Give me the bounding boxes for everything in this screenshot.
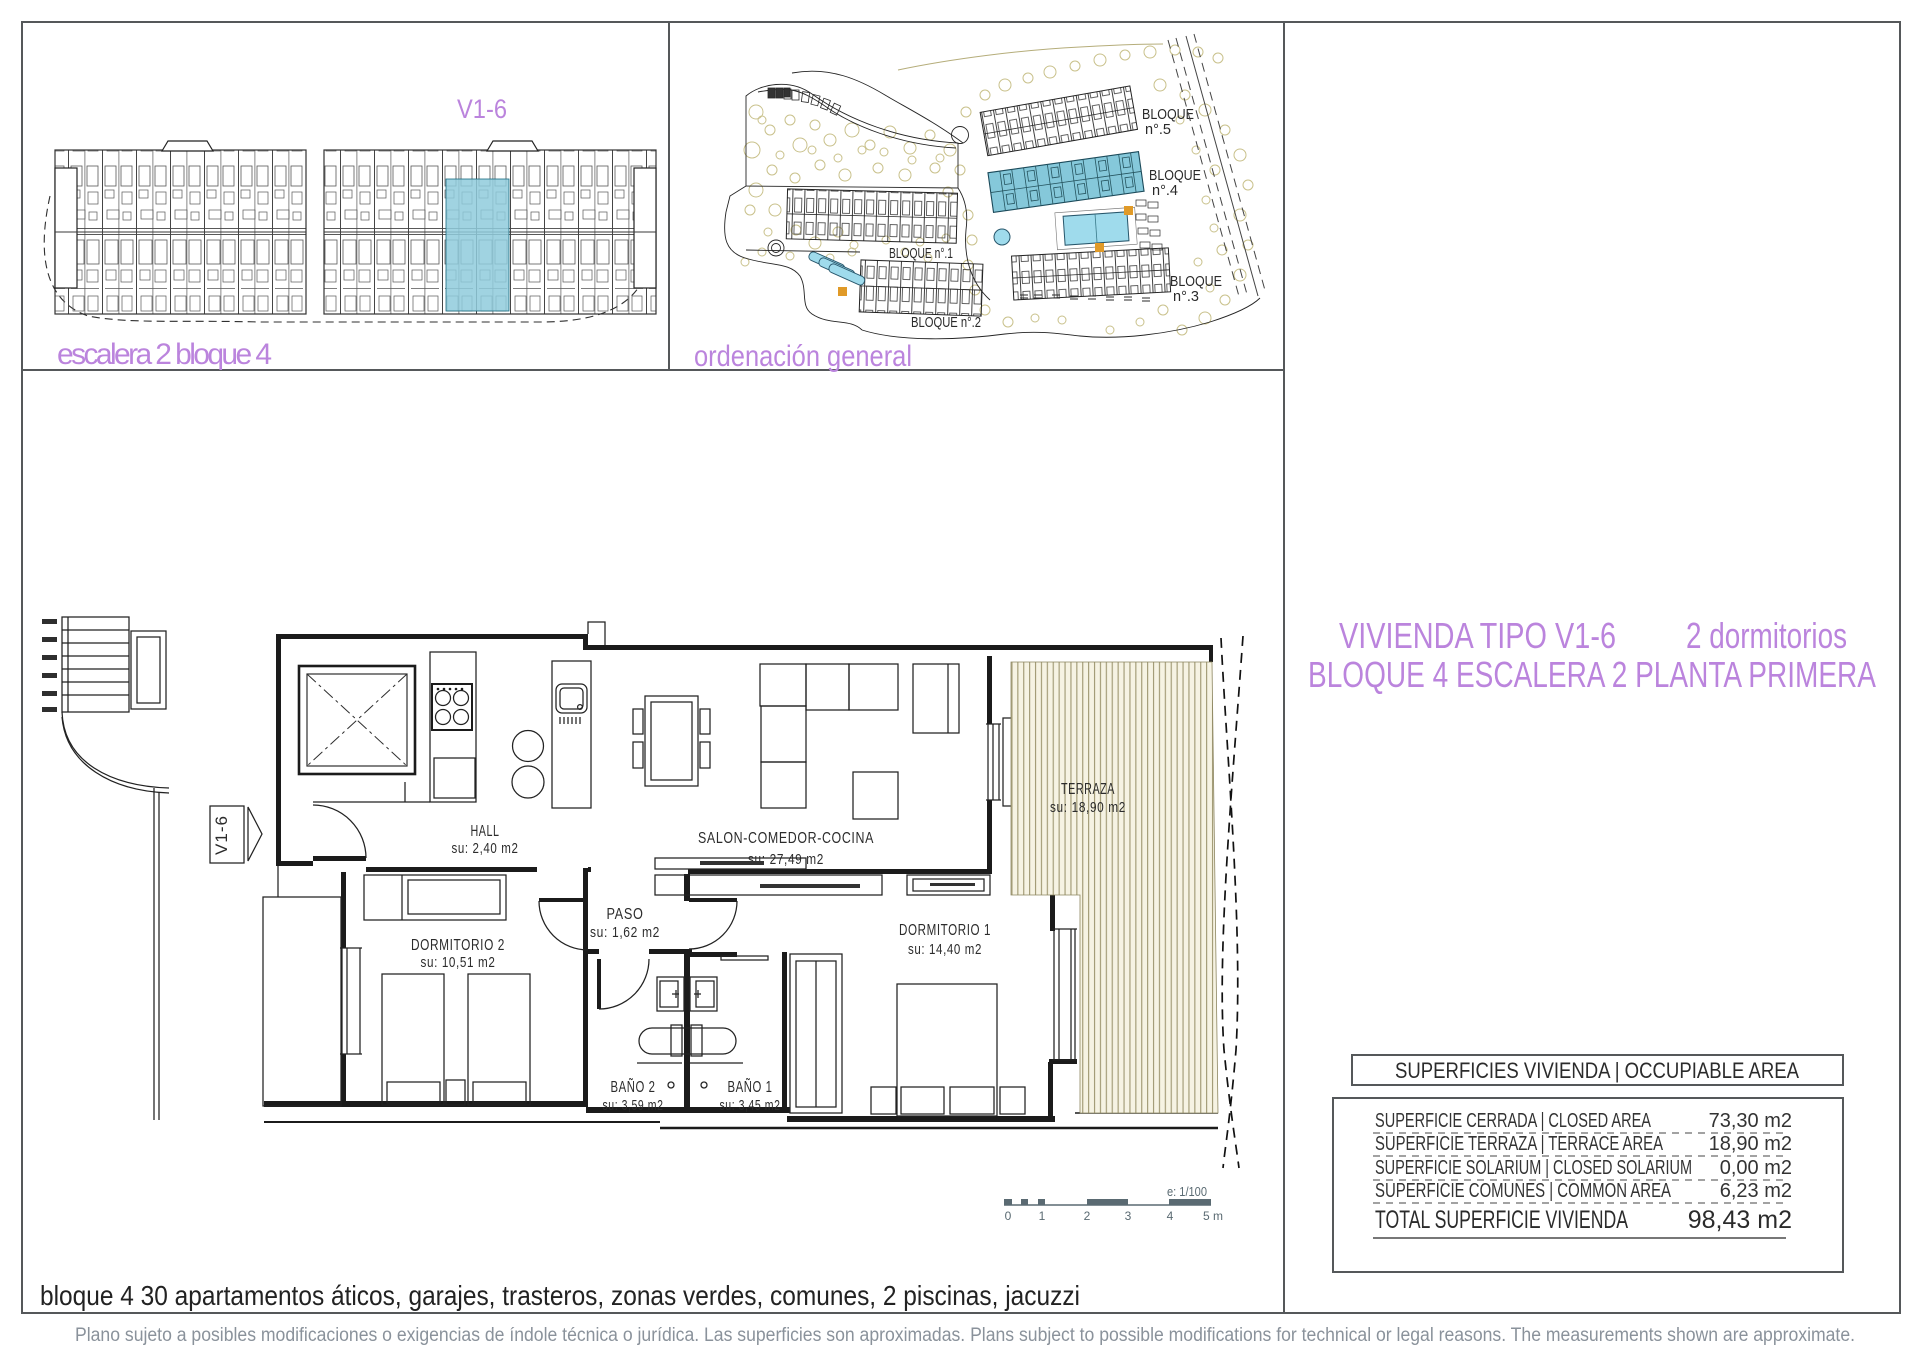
svg-text:BAÑO 1: BAÑO 1 bbox=[728, 1076, 773, 1096]
svg-text:BLOQUE n°.1: BLOQUE n°.1 bbox=[889, 245, 953, 262]
svg-text:SUPERFICIE CERRADA | CLOSED AR: SUPERFICIE CERRADA | CLOSED AREA bbox=[1375, 1110, 1651, 1132]
svg-text:su: 3,45 m2: su: 3,45 m2 bbox=[720, 1097, 781, 1114]
svg-text:su: 27,49 m2: su: 27,49 m2 bbox=[748, 851, 824, 868]
svg-text:V1-6: V1-6 bbox=[212, 815, 231, 855]
svg-text:su: 14,40 m2: su: 14,40 m2 bbox=[908, 941, 982, 958]
svg-text:SUPERFICIE TERRAZA | TERRACE: SUPERFICIE TERRAZA | TERRACE AREA bbox=[1375, 1133, 1663, 1155]
svg-text:su: 18,90 m2: su: 18,90 m2 bbox=[1050, 799, 1126, 816]
svg-text:su: 2,40 m2: su: 2,40 m2 bbox=[452, 840, 519, 857]
svg-text:n°.3: n°.3 bbox=[1173, 288, 1199, 305]
svg-text:SUPERFICIES VIVIENDA | OCCUPIA: SUPERFICIES VIVIENDA | OCCUPIABLE AREA bbox=[1395, 1058, 1799, 1083]
svg-text:Plano sujeto a posibles modifi: Plano sujeto a posibles modificaciones o… bbox=[75, 1325, 1855, 1346]
svg-text:bloque 4 30 apartamentos ático: bloque 4 30 apartamentos áticos, garajes… bbox=[40, 1280, 1080, 1311]
svg-text:0: 0 bbox=[1005, 1209, 1012, 1223]
svg-text:PASO: PASO bbox=[607, 906, 644, 923]
svg-text:escalera 2 bloque 4: escalera 2 bloque 4 bbox=[57, 338, 272, 371]
svg-text:98,43 m2: 98,43 m2 bbox=[1688, 1206, 1792, 1234]
svg-text:SUPERFICIE COMUNES | COMMON AR: SUPERFICIE COMUNES | COMMON AREA bbox=[1375, 1180, 1671, 1202]
svg-text:HALL: HALL bbox=[471, 823, 500, 840]
svg-text:su: 1,62 m2: su: 1,62 m2 bbox=[590, 924, 660, 941]
svg-text:TOTAL SUPERFICIE VIVIENDA: TOTAL SUPERFICIE VIVIENDA bbox=[1375, 1206, 1628, 1234]
svg-text:2 dormitorios: 2 dormitorios bbox=[1686, 615, 1847, 656]
svg-text:73,30 m2: 73,30 m2 bbox=[1709, 1110, 1792, 1132]
svg-text:SALON-COMEDOR-COCINA: SALON-COMEDOR-COCINA bbox=[698, 830, 874, 847]
svg-text:su: 3,59 m2: su: 3,59 m2 bbox=[603, 1097, 664, 1114]
svg-text:0,00 m2: 0,00 m2 bbox=[1720, 1157, 1792, 1179]
svg-text:5 m: 5 m bbox=[1203, 1209, 1223, 1223]
svg-text:e: 1/100: e: 1/100 bbox=[1167, 1184, 1207, 1199]
svg-text:2: 2 bbox=[1084, 1209, 1091, 1223]
svg-text:SUPERFICIE SOLARIUM | CLOSED S: SUPERFICIE SOLARIUM | CLOSED SOLARIUM bbox=[1375, 1157, 1692, 1179]
svg-text:ordenación general: ordenación general bbox=[694, 340, 912, 373]
svg-text:6,23 m2: 6,23 m2 bbox=[1720, 1180, 1792, 1202]
svg-text:V1-6: V1-6 bbox=[457, 94, 507, 124]
svg-text:DORMITORIO 1: DORMITORIO 1 bbox=[899, 922, 991, 939]
svg-text:4: 4 bbox=[1167, 1209, 1174, 1223]
svg-text:BAÑO 2: BAÑO 2 bbox=[611, 1076, 656, 1096]
svg-text:DORMITORIO 2: DORMITORIO 2 bbox=[411, 937, 505, 954]
svg-text:TERRAZA: TERRAZA bbox=[1061, 781, 1115, 798]
svg-text:BLOQUE 4 ESCALERA 2 PLANTA P: BLOQUE 4 ESCALERA 2 PLANTA PRIMERA bbox=[1308, 654, 1876, 695]
svg-text:n°.4: n°.4 bbox=[1152, 182, 1178, 199]
svg-text:n°.5: n°.5 bbox=[1145, 121, 1171, 138]
svg-text:BLOQUE n°.2: BLOQUE n°.2 bbox=[911, 314, 981, 331]
svg-text:18,90 m2: 18,90 m2 bbox=[1709, 1133, 1792, 1155]
svg-text:3: 3 bbox=[1125, 1209, 1132, 1223]
svg-text:su: 10,51 m2: su: 10,51 m2 bbox=[421, 954, 496, 971]
svg-text:VIVIENDA TIPO V1-6: VIVIENDA TIPO V1-6 bbox=[1339, 615, 1616, 656]
svg-text:1: 1 bbox=[1039, 1209, 1046, 1223]
